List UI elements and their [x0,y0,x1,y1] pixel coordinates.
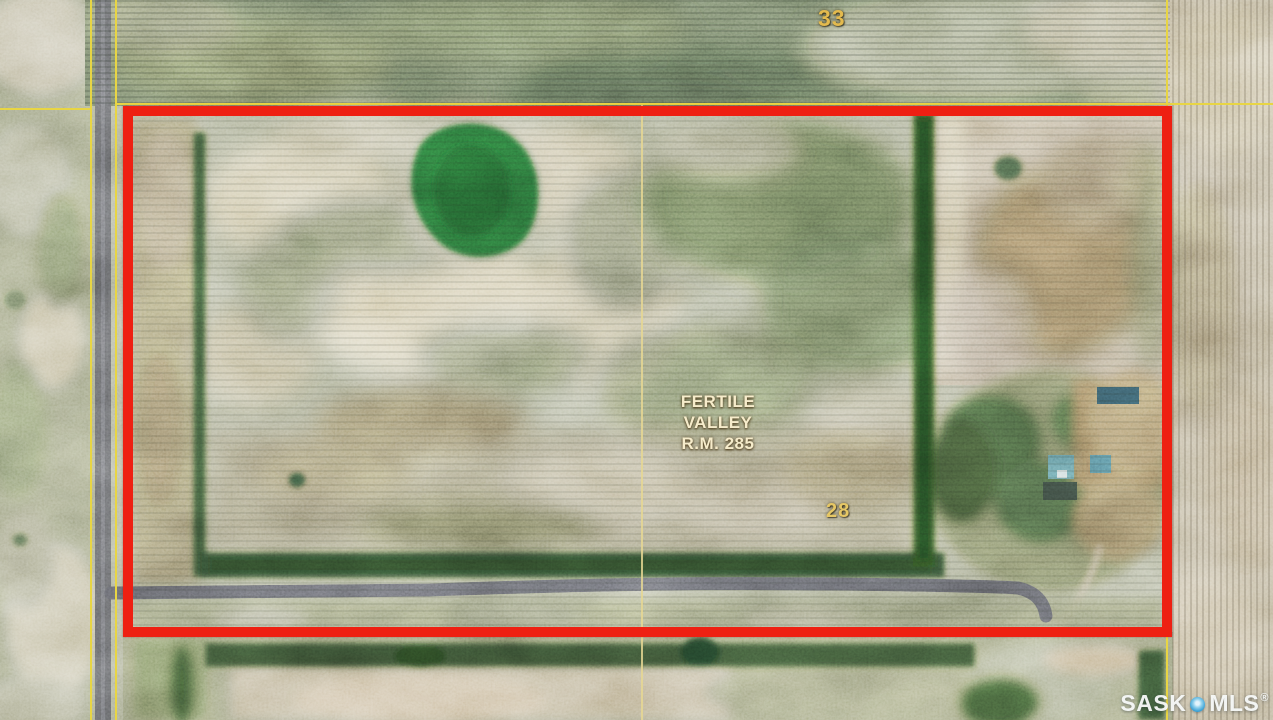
rm-label-line2: VALLEY [648,412,788,433]
watermark-suffix: MLS [1209,690,1259,717]
watermark-prefix: SASK [1120,690,1186,717]
rural-municipality-label: FERTILE VALLEY R.M. 285 [648,391,788,454]
registered-trademark-symbol: ® [1260,692,1269,704]
satellite-map: 33 28 FERTILE VALLEY R.M. 285 SASK MLS ® [0,0,1273,720]
section-label-33: 33 [818,7,846,30]
sask-mls-watermark: SASK MLS ® [1120,690,1269,717]
rm-label-line3: R.M. 285 [648,433,788,454]
section-label-28: 28 [826,501,850,521]
rm-label-line1: FERTILE [648,391,788,412]
location-dot-icon [1190,697,1205,712]
aerial-terrain-art [0,0,1273,720]
